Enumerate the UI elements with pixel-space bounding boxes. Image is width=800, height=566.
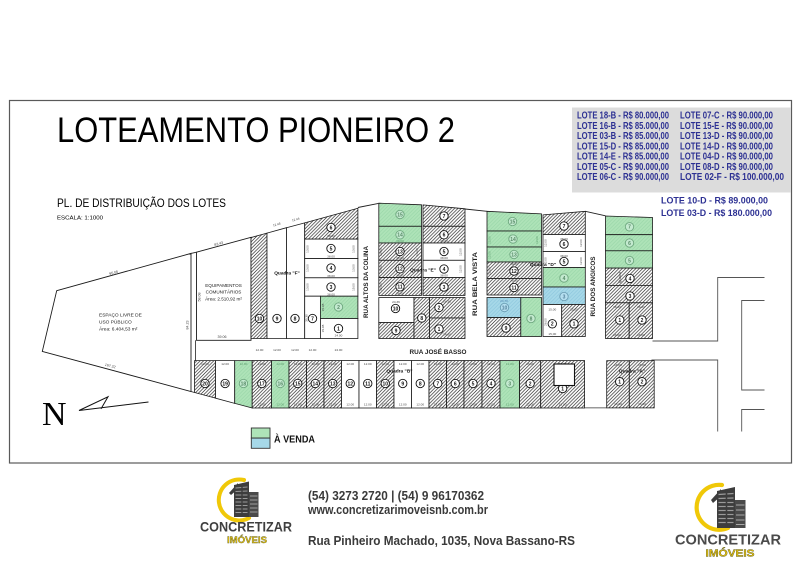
svg-text:9: 9 <box>276 316 279 322</box>
svg-text:12.00: 12.00 <box>276 362 284 366</box>
svg-text:12.00: 12.00 <box>487 267 491 275</box>
svg-text:16.00: 16.00 <box>614 363 622 367</box>
svg-text:1: 1 <box>618 380 621 386</box>
svg-text:À VENDA: À VENDA <box>274 433 315 446</box>
svg-text:IMÓVEIS: IMÓVEIS <box>227 534 267 545</box>
svg-text:1: 1 <box>573 322 576 328</box>
svg-text:12.00: 12.00 <box>346 362 354 366</box>
svg-text:12.00: 12.00 <box>379 265 383 273</box>
svg-text:12.00: 12.00 <box>506 362 514 366</box>
svg-text:12.00: 12.00 <box>276 403 284 407</box>
svg-text:13.00: 13.00 <box>351 245 355 253</box>
svg-text:20: 20 <box>202 381 208 387</box>
svg-text:12.00: 12.00 <box>240 362 248 366</box>
svg-text:N: N <box>42 396 67 433</box>
svg-text:2: 2 <box>529 381 532 387</box>
svg-text:15,00: 15,00 <box>548 308 556 312</box>
svg-text:12.00: 12.00 <box>258 403 266 407</box>
svg-text:4: 4 <box>443 267 446 273</box>
svg-text:13.00: 13.00 <box>305 245 309 253</box>
svg-text:2: 2 <box>438 305 441 311</box>
svg-text:2: 2 <box>641 380 644 386</box>
svg-text:13.00: 13.00 <box>305 264 309 272</box>
svg-text:12.00: 12.00 <box>579 257 583 265</box>
svg-text:2: 2 <box>641 318 644 324</box>
svg-text:4: 4 <box>330 266 333 272</box>
svg-text:5: 5 <box>330 246 333 252</box>
svg-text:15,00: 15,00 <box>570 308 578 312</box>
svg-text:12.00: 12.00 <box>379 248 383 256</box>
svg-text:(54) 3273 2720 | (54) 9 961703: (54) 3273 2720 | (54) 9 96170362 <box>308 488 484 503</box>
svg-text:2: 2 <box>551 322 554 328</box>
svg-text:www.concretizarimoveisnb.com.b: www.concretizarimoveisnb.com.br <box>307 502 488 517</box>
svg-text:Quadra "A": Quadra "A" <box>619 369 645 375</box>
svg-text:12.00: 12.00 <box>381 403 389 407</box>
svg-text:16: 16 <box>277 381 283 387</box>
svg-text:12.00: 12.00 <box>364 362 372 366</box>
svg-text:19: 19 <box>222 381 228 387</box>
svg-text:PL. DE DISTRIBUIÇÃO DOS LOTES: PL. DE DISTRIBUIÇÃO DOS LOTES <box>57 197 226 210</box>
svg-text:ESPAÇO LIVRE DE: ESPAÇO LIVRE DE <box>99 313 142 319</box>
svg-text:12.00: 12.00 <box>294 362 302 366</box>
svg-text:38.00: 38.00 <box>396 239 404 243</box>
svg-text:ESCALA: 1:1000: ESCALA: 1:1000 <box>57 216 103 222</box>
svg-text:26,00: 26,00 <box>543 318 547 326</box>
svg-text:12.00: 12.00 <box>309 348 317 352</box>
svg-text:24.36: 24.36 <box>392 300 400 304</box>
svg-text:12.00: 12.00 <box>526 403 534 407</box>
svg-text:12.00: 12.00 <box>294 403 302 407</box>
svg-text:12.00: 12.00 <box>256 348 264 352</box>
svg-text:12.00: 12.00 <box>221 362 229 366</box>
svg-text:15: 15 <box>397 212 403 218</box>
svg-text:38.00: 38.00 <box>440 273 448 277</box>
svg-text:Quadra "F": Quadra "F" <box>274 271 300 277</box>
svg-text:LOTE 06-C - R$ 90.000,00: LOTE 06-C - R$ 90.000,00 <box>577 172 669 183</box>
svg-text:12.00: 12.00 <box>487 403 495 407</box>
svg-text:38.00: 38.00 <box>327 255 335 259</box>
svg-text:38.00: 38.00 <box>396 273 404 277</box>
svg-text:3: 3 <box>330 285 333 291</box>
svg-text:24.00: 24.00 <box>335 334 343 338</box>
svg-text:24.00: 24.00 <box>443 333 451 337</box>
svg-text:12.00: 12.00 <box>273 348 281 352</box>
svg-text:38.00: 38.00 <box>396 256 404 260</box>
svg-text:13: 13 <box>330 381 336 387</box>
svg-text:12.00: 12.00 <box>364 403 372 407</box>
svg-text:17: 17 <box>259 381 265 387</box>
svg-text:6: 6 <box>454 381 457 387</box>
svg-text:16.00: 16.00 <box>614 402 622 406</box>
svg-text:15: 15 <box>295 381 301 387</box>
svg-text:8: 8 <box>294 316 297 322</box>
svg-text:16.00: 16.00 <box>638 402 646 406</box>
svg-text:12.00: 12.00 <box>434 403 442 407</box>
svg-text:EQUIPAMENTOS: EQUIPAMENTOS <box>205 283 242 288</box>
svg-text:38.00: 38.00 <box>327 234 335 238</box>
svg-text:RUA BELA VISTA: RUA BELA VISTA <box>472 252 479 316</box>
svg-text:7: 7 <box>436 381 439 387</box>
svg-text:1: 1 <box>561 386 564 392</box>
svg-text:12.00: 12.00 <box>451 362 459 366</box>
svg-text:12.00: 12.00 <box>416 362 424 366</box>
svg-text:38.00: 38.00 <box>327 274 335 278</box>
svg-text:13: 13 <box>511 252 517 258</box>
svg-text:Área: 6.404,53 m²: Área: 6.404,53 m² <box>99 326 138 333</box>
svg-text:16.00: 16.00 <box>613 333 621 337</box>
svg-text:RUA DOS ANGICOS: RUA DOS ANGICOS <box>590 256 597 317</box>
svg-text:15.08: 15.08 <box>321 303 325 311</box>
svg-text:COMUNITÁRIOS: COMUNITÁRIOS <box>206 289 242 295</box>
svg-text:15,00: 15,00 <box>526 362 534 366</box>
svg-text:12: 12 <box>511 269 517 275</box>
svg-text:7: 7 <box>443 214 446 220</box>
svg-text:11: 11 <box>365 381 371 387</box>
svg-text:9: 9 <box>505 326 508 332</box>
svg-text:12.00: 12.00 <box>416 403 424 407</box>
svg-text:7: 7 <box>311 316 314 322</box>
svg-text:12.00: 12.00 <box>487 251 491 259</box>
svg-text:38.00: 38.00 <box>440 239 448 243</box>
svg-text:2: 2 <box>337 305 340 311</box>
svg-text:10: 10 <box>393 306 399 312</box>
svg-text:38.00: 38.00 <box>440 256 448 260</box>
svg-text:39.06: 39.06 <box>218 335 227 339</box>
svg-text:24.00: 24.00 <box>335 348 343 352</box>
svg-text:8: 8 <box>530 316 533 322</box>
svg-text:24.36: 24.36 <box>443 300 451 304</box>
svg-text:Rua Pinheiro Machado, 1035, No: Rua Pinheiro Machado, 1035, Nova Bassano… <box>308 533 575 548</box>
svg-text:12.00: 12.00 <box>311 403 319 407</box>
svg-text:3: 3 <box>563 294 566 300</box>
svg-text:15,00: 15,00 <box>548 332 556 336</box>
svg-text:12.00: 12.00 <box>469 362 477 366</box>
svg-text:14: 14 <box>397 233 403 239</box>
svg-text:12.00: 12.00 <box>559 403 567 407</box>
svg-text:12: 12 <box>397 267 403 273</box>
svg-text:12: 12 <box>347 381 353 387</box>
svg-text:38.00: 38.00 <box>396 291 404 295</box>
svg-text:12.00: 12.00 <box>311 362 319 366</box>
svg-text:18: 18 <box>241 381 247 387</box>
svg-text:13.00: 13.00 <box>415 248 419 256</box>
svg-text:4: 4 <box>563 276 566 282</box>
svg-text:Quadra: Quadra <box>618 272 622 283</box>
svg-text:6: 6 <box>563 242 566 248</box>
svg-text:4: 4 <box>490 381 493 387</box>
svg-text:RUA ALTOS DA COLINA: RUA ALTOS DA COLINA <box>363 246 370 318</box>
svg-text:38.00: 38.00 <box>560 254 568 258</box>
svg-text:12.00: 12.00 <box>329 362 337 366</box>
svg-text:16.00: 16.00 <box>613 305 621 309</box>
svg-text:10: 10 <box>502 305 508 311</box>
svg-text:12.00: 12.00 <box>543 257 547 265</box>
svg-text:5: 5 <box>472 381 475 387</box>
svg-text:16.00: 16.00 <box>638 363 646 367</box>
svg-text:1: 1 <box>618 318 621 324</box>
svg-text:12.00: 12.00 <box>291 348 299 352</box>
svg-text:12.00: 12.00 <box>579 239 583 247</box>
svg-text:8: 8 <box>420 316 423 322</box>
svg-text:CONCRETIZAR: CONCRETIZAR <box>200 519 292 535</box>
svg-text:IMÓVEIS: IMÓVEIS <box>706 547 755 560</box>
svg-text:38.00: 38.00 <box>510 262 518 266</box>
svg-text:LOTE 02-F - R$ 100.000,00: LOTE 02-F - R$ 100.000,00 <box>680 172 784 183</box>
svg-text:1: 1 <box>438 327 441 333</box>
svg-text:Quadra "E": Quadra "E" <box>410 268 436 274</box>
svg-text:12.00: 12.00 <box>379 283 383 291</box>
svg-text:15.08: 15.08 <box>321 324 325 332</box>
svg-text:Quadra "B": Quadra "B" <box>386 368 412 374</box>
svg-text:15.00: 15.00 <box>351 283 355 291</box>
svg-text:12.00: 12.00 <box>399 362 407 366</box>
svg-text:12.00: 12.00 <box>487 236 491 244</box>
svg-text:6: 6 <box>330 225 333 231</box>
svg-text:12.00: 12.00 <box>487 362 495 366</box>
svg-text:14: 14 <box>510 237 516 243</box>
svg-text:12.00: 12.00 <box>451 403 459 407</box>
svg-text:4: 4 <box>629 276 632 282</box>
svg-text:USO PÚBLICO: USO PÚBLICO <box>99 319 132 326</box>
svg-text:5: 5 <box>563 259 566 265</box>
svg-text:13: 13 <box>397 249 403 255</box>
svg-text:9: 9 <box>395 328 398 334</box>
svg-text:58.08: 58.08 <box>198 293 202 302</box>
svg-text:LOTE 10-D - R$ 89.000,00: LOTE 10-D - R$ 89.000,00 <box>661 196 768 207</box>
svg-text:10: 10 <box>257 316 263 322</box>
svg-text:12.00: 12.00 <box>399 403 407 407</box>
svg-text:5: 5 <box>443 249 446 255</box>
svg-text:10: 10 <box>382 381 388 387</box>
svg-text:12.00: 12.00 <box>543 239 547 247</box>
svg-text:14: 14 <box>312 381 318 387</box>
svg-text:30.30: 30.30 <box>305 314 309 322</box>
svg-text:5: 5 <box>628 258 631 264</box>
svg-text:12.00: 12.00 <box>381 362 389 366</box>
svg-text:12.00: 12.00 <box>469 403 477 407</box>
svg-text:13.00: 13.00 <box>305 283 309 291</box>
svg-text:7: 7 <box>628 225 631 231</box>
svg-text:12.00: 12.00 <box>459 265 463 273</box>
svg-text:12.00: 12.00 <box>329 403 337 407</box>
svg-text:Área: 2.510,92 m²: Área: 2.510,92 m² <box>205 296 242 302</box>
svg-text:16.00: 16.00 <box>637 305 645 309</box>
svg-text:13.00: 13.00 <box>351 264 355 272</box>
svg-text:12.00: 12.00 <box>346 403 354 407</box>
svg-text:3: 3 <box>443 285 446 291</box>
svg-text:CONCRETIZAR: CONCRETIZAR <box>675 532 781 549</box>
svg-text:12.00: 12.00 <box>459 248 463 256</box>
svg-text:LOTE 03-D - R$ 180.000,00: LOTE 03-D - R$ 180.000,00 <box>661 208 772 219</box>
svg-text:38.00: 38.00 <box>560 237 568 241</box>
svg-text:12.00: 12.00 <box>434 362 442 366</box>
svg-text:38.00: 38.00 <box>510 279 518 283</box>
svg-text:RUA JOSÉ BASSO: RUA JOSÉ BASSO <box>410 347 467 356</box>
svg-text:16.00: 16.00 <box>637 333 645 337</box>
svg-text:12.00: 12.00 <box>506 403 514 407</box>
svg-text:12.00: 12.00 <box>258 362 266 366</box>
svg-text:12.00: 12.00 <box>535 236 539 244</box>
svg-text:9: 9 <box>401 381 404 387</box>
svg-text:3: 3 <box>629 294 632 300</box>
svg-text:1: 1 <box>337 326 340 332</box>
svg-text:7: 7 <box>563 224 566 230</box>
svg-text:LOTEAMENTO PIONEIRO 2: LOTEAMENTO PIONEIRO 2 <box>57 111 455 150</box>
svg-text:15: 15 <box>510 219 516 225</box>
svg-text:11: 11 <box>397 285 403 291</box>
svg-text:84.23: 84.23 <box>185 321 189 330</box>
svg-text:6: 6 <box>443 233 446 239</box>
svg-text:11: 11 <box>511 285 517 291</box>
svg-text:13.00: 13.00 <box>201 362 209 366</box>
svg-text:8: 8 <box>419 381 422 387</box>
svg-text:3: 3 <box>508 381 511 387</box>
svg-text:6: 6 <box>628 241 631 247</box>
svg-text:24.70: 24.70 <box>500 299 508 303</box>
